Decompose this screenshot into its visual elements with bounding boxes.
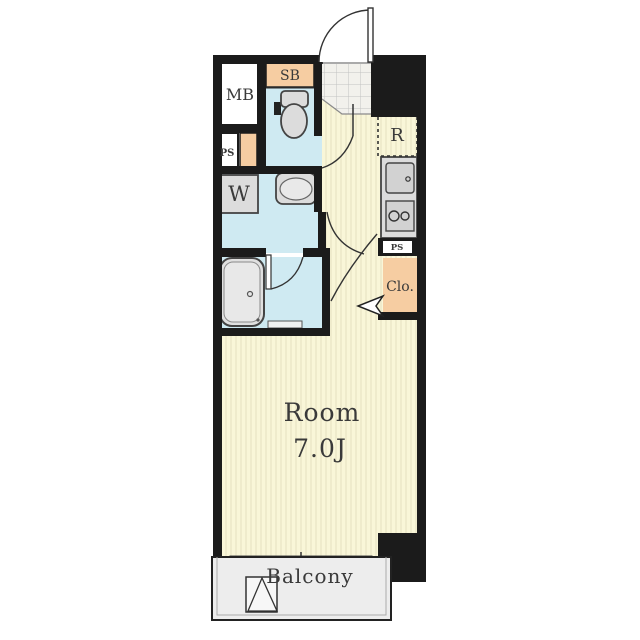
washroom-door-leaf xyxy=(318,212,326,253)
closet-label: Clo. xyxy=(386,279,414,295)
wall-bathroom-north-left xyxy=(213,248,266,257)
wall-under-mb xyxy=(213,124,257,133)
toilet-paper-holder-icon xyxy=(274,102,281,115)
room-size-label: 7.0J xyxy=(293,434,347,463)
room-label: Room xyxy=(284,398,361,427)
wall-bathroom-east xyxy=(322,248,330,336)
wall-mb-toilet xyxy=(257,64,266,172)
refrigerator-label: R xyxy=(390,125,404,146)
wall-under-closet xyxy=(378,312,426,320)
bathtub-faucet-icon xyxy=(256,318,259,321)
wall-washroom-north xyxy=(213,166,322,174)
floorplan-canvas: MB PS SB W R PS Clo. Room 7.0J Balcony xyxy=(0,0,640,640)
balcony-label: Balcony xyxy=(266,564,353,588)
wall-room-top-left xyxy=(213,328,330,336)
entrance-door-leaf xyxy=(368,8,373,62)
pipe-space-left-label: PS xyxy=(220,148,235,159)
stove-icon xyxy=(386,201,414,231)
wall-toilet-east xyxy=(314,64,322,136)
meter-box-label: MB xyxy=(226,85,254,104)
bath-counter-icon xyxy=(268,321,302,328)
floorplan-drawing: MB PS SB W R PS Clo. Room 7.0J Balcony xyxy=(0,0,640,640)
wall-outer-right xyxy=(417,117,426,533)
wall-outer-top xyxy=(213,55,323,64)
pipe-space-right-label: PS xyxy=(391,243,404,253)
washing-machine-label: W xyxy=(228,182,250,206)
bathtub-inner-icon xyxy=(224,262,260,322)
toilet-bowl-icon xyxy=(281,104,307,138)
wall-block-top-right xyxy=(371,55,426,117)
bathroom-door-leaf xyxy=(266,255,271,289)
washbasin-bowl-icon xyxy=(280,178,312,200)
wall-washroom-east xyxy=(314,174,322,212)
entrance-door-swing-area xyxy=(319,10,371,62)
duct-strip xyxy=(240,133,257,170)
shoe-box-label: SB xyxy=(280,68,300,84)
